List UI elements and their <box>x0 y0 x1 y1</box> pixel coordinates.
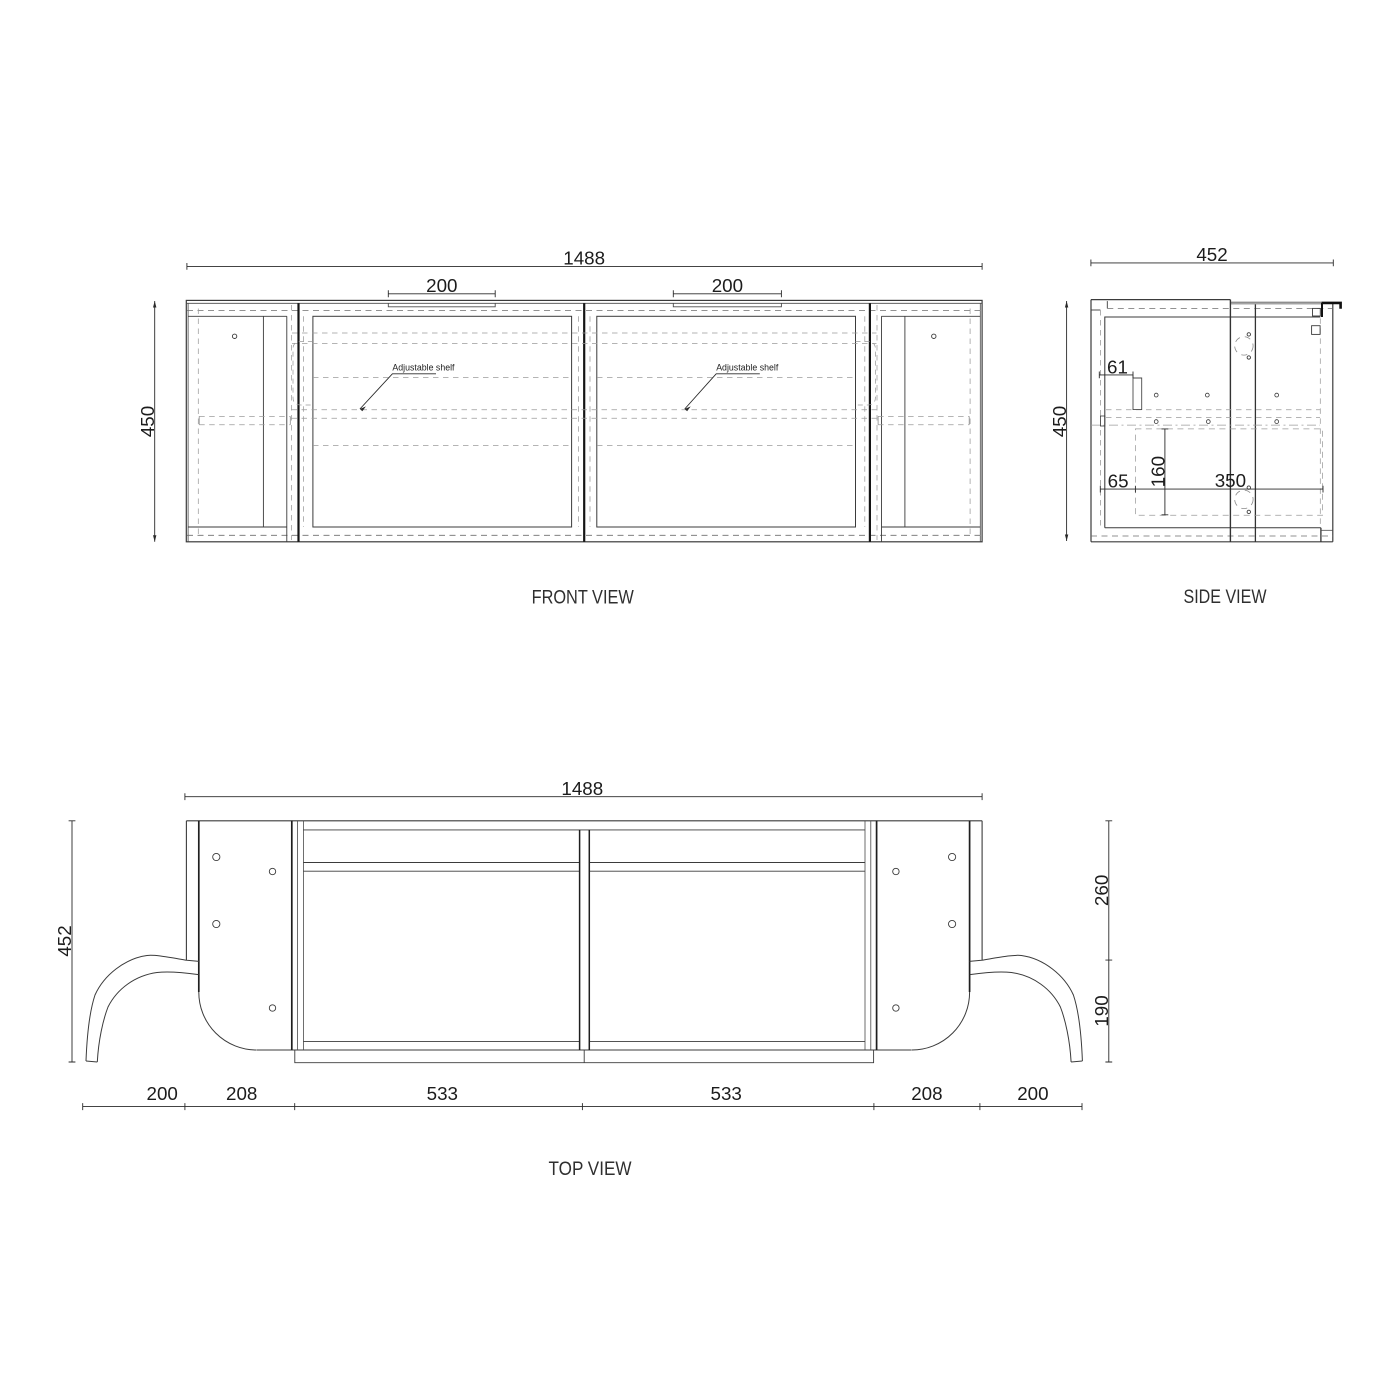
svg-text:200: 200 <box>147 1083 178 1104</box>
svg-text:200: 200 <box>426 275 457 296</box>
svg-text:350: 350 <box>1215 470 1246 491</box>
svg-text:Adjustable shelf: Adjustable shelf <box>716 363 779 373</box>
svg-text:FRONT VIEW: FRONT VIEW <box>532 587 634 608</box>
svg-text:452: 452 <box>54 925 75 956</box>
svg-text:450: 450 <box>1049 406 1070 437</box>
svg-text:208: 208 <box>226 1083 257 1104</box>
svg-text:160: 160 <box>1147 456 1168 487</box>
svg-text:208: 208 <box>911 1083 942 1104</box>
svg-text:65: 65 <box>1108 470 1129 491</box>
svg-text:200: 200 <box>712 275 743 296</box>
svg-text:190: 190 <box>1091 995 1112 1026</box>
svg-text:533: 533 <box>711 1083 742 1104</box>
svg-text:Adjustable shelf: Adjustable shelf <box>392 363 455 373</box>
svg-text:200: 200 <box>1017 1083 1048 1104</box>
svg-text:TOP VIEW: TOP VIEW <box>549 1159 632 1180</box>
svg-text:1488: 1488 <box>563 248 605 269</box>
svg-text:260: 260 <box>1091 875 1112 906</box>
svg-text:450: 450 <box>137 406 158 437</box>
svg-text:1488: 1488 <box>561 778 603 799</box>
svg-text:SIDE VIEW: SIDE VIEW <box>1184 587 1267 608</box>
svg-text:452: 452 <box>1196 244 1227 265</box>
svg-text:61: 61 <box>1107 356 1128 377</box>
svg-text:533: 533 <box>427 1083 458 1104</box>
